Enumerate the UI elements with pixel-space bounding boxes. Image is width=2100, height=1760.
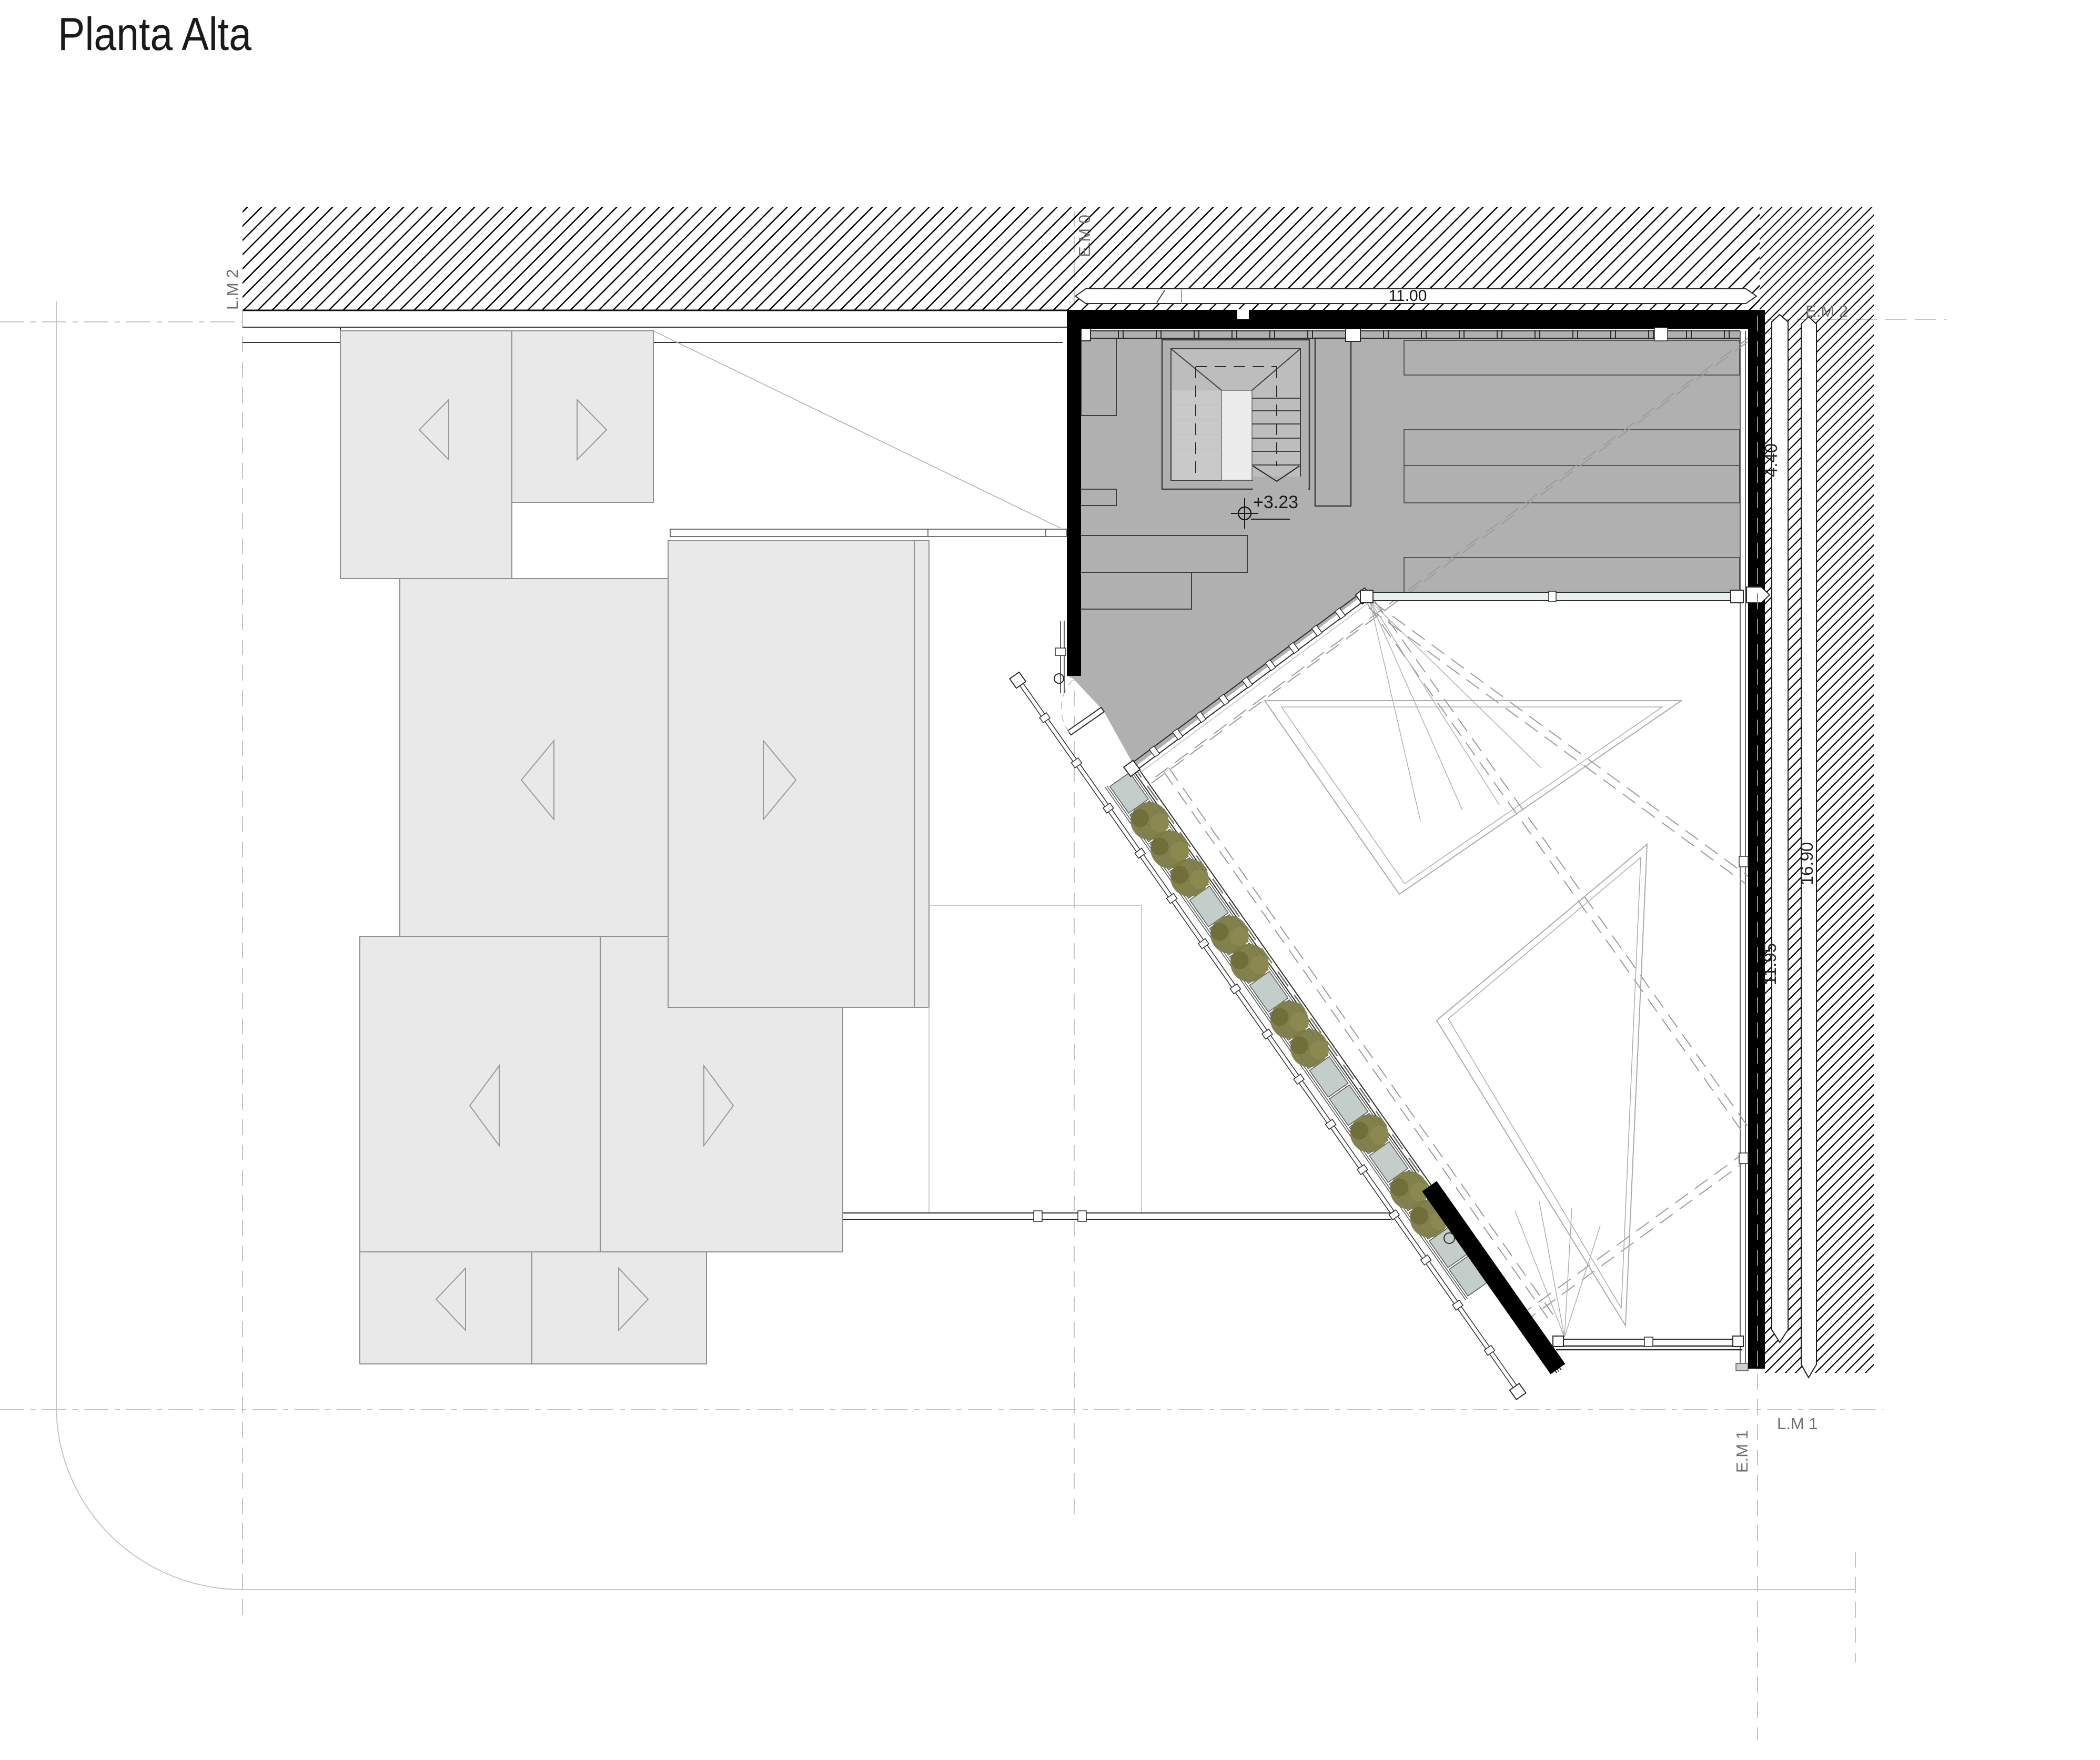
svg-text:E.M 1: E.M 1 [1733, 1430, 1751, 1473]
svg-text:+3.23: +3.23 [1253, 492, 1298, 512]
svg-text:11.95: 11.95 [1760, 943, 1780, 985]
svg-text:16.90: 16.90 [1797, 842, 1816, 886]
svg-text:L.M 2: L.M 2 [223, 269, 241, 310]
svg-text:4.40: 4.40 [1761, 443, 1781, 477]
svg-text:Planta Alta: Planta Alta [58, 8, 251, 60]
svg-text:E.M 0: E.M 0 [1075, 215, 1094, 257]
svg-text:11.00: 11.00 [1389, 287, 1427, 305]
svg-text:L.M 1: L.M 1 [1777, 1414, 1818, 1433]
svg-text:E.M 2: E.M 2 [1805, 302, 1848, 320]
